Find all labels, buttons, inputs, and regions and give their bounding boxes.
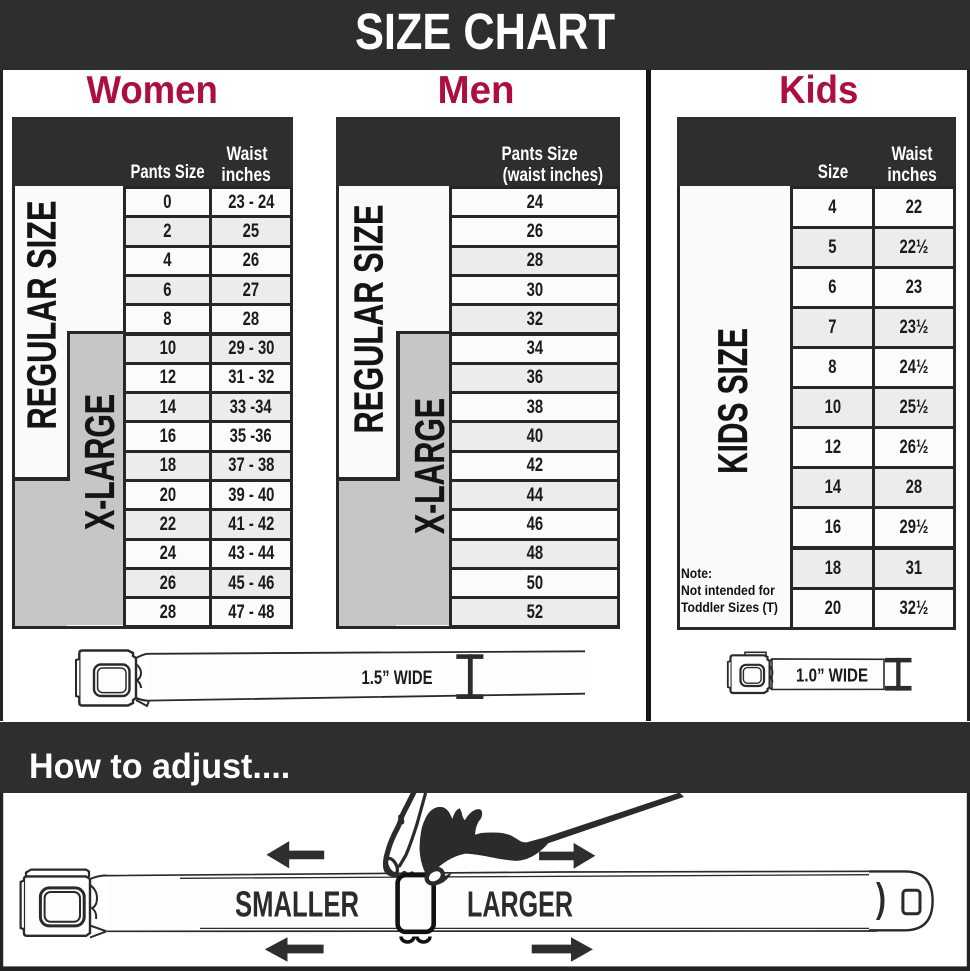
svg-text:1.5” WIDE: 1.5” WIDE xyxy=(362,668,433,689)
svg-text:1.0” WIDE: 1.0” WIDE xyxy=(796,664,868,685)
svg-text:LARGER: LARGER xyxy=(467,883,573,924)
svg-text:SMALLER: SMALLER xyxy=(235,883,359,924)
